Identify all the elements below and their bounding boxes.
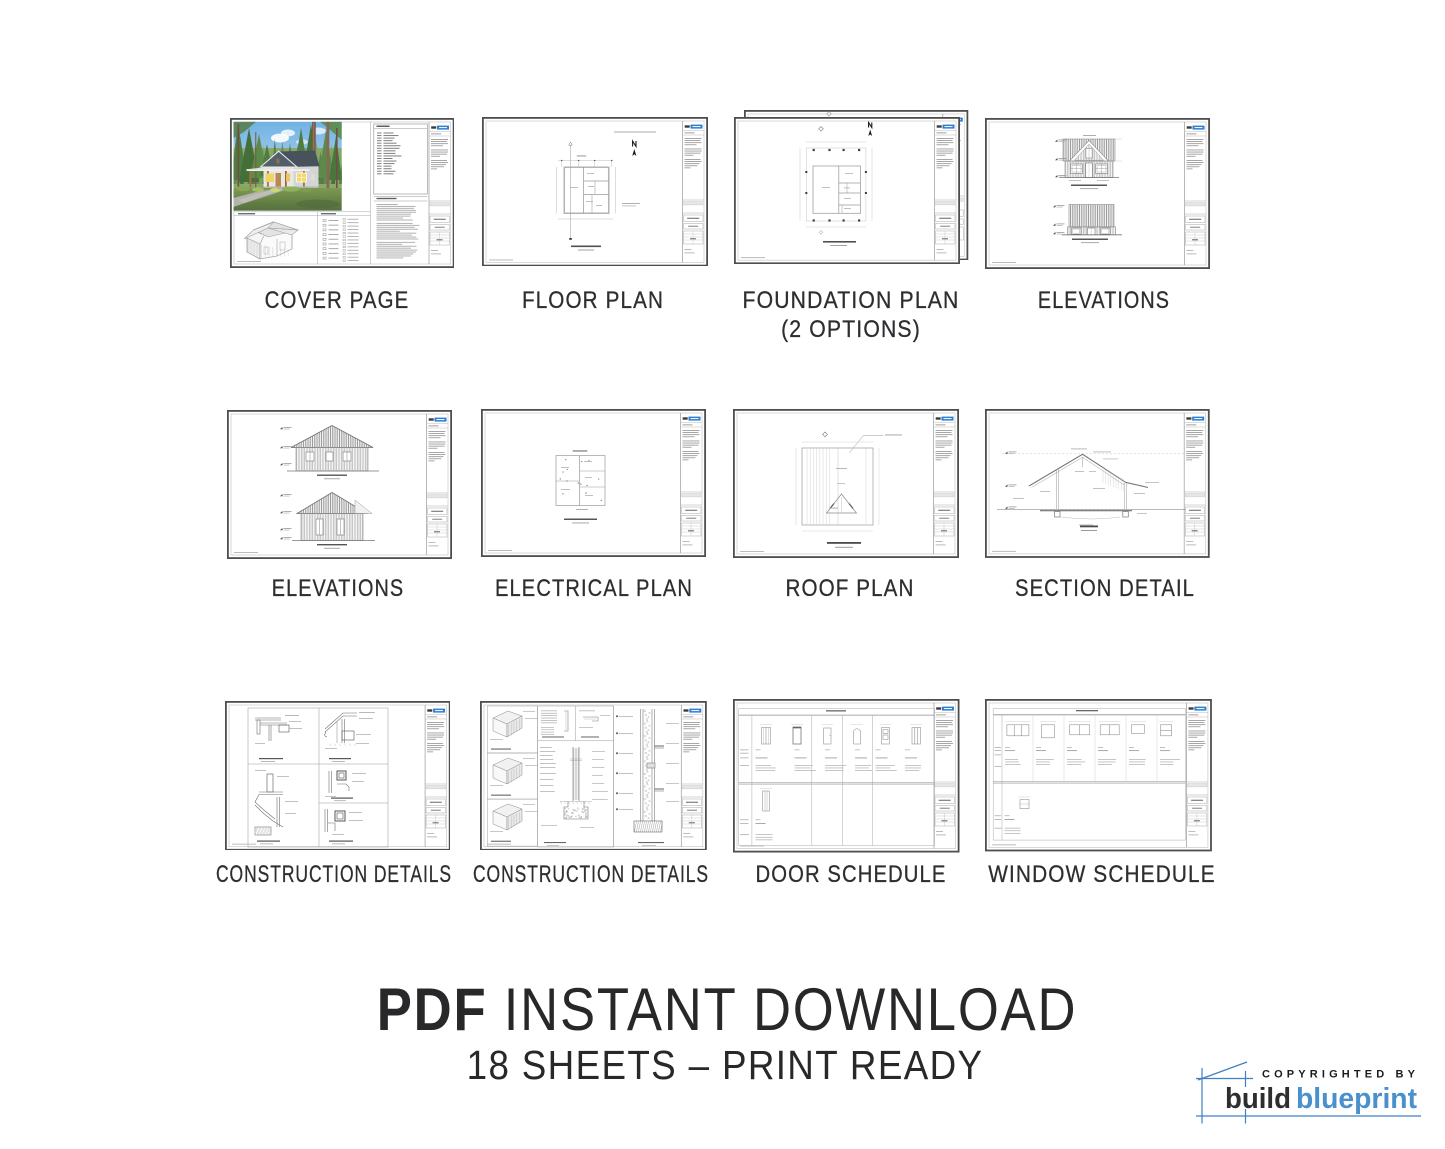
svg-text:COPYRIGHTED BY: COPYRIGHTED BY <box>1262 1069 1416 1081</box>
svg-text:build: build <box>1225 1083 1291 1115</box>
svg-text:blueprint: blueprint <box>1296 1083 1418 1115</box>
